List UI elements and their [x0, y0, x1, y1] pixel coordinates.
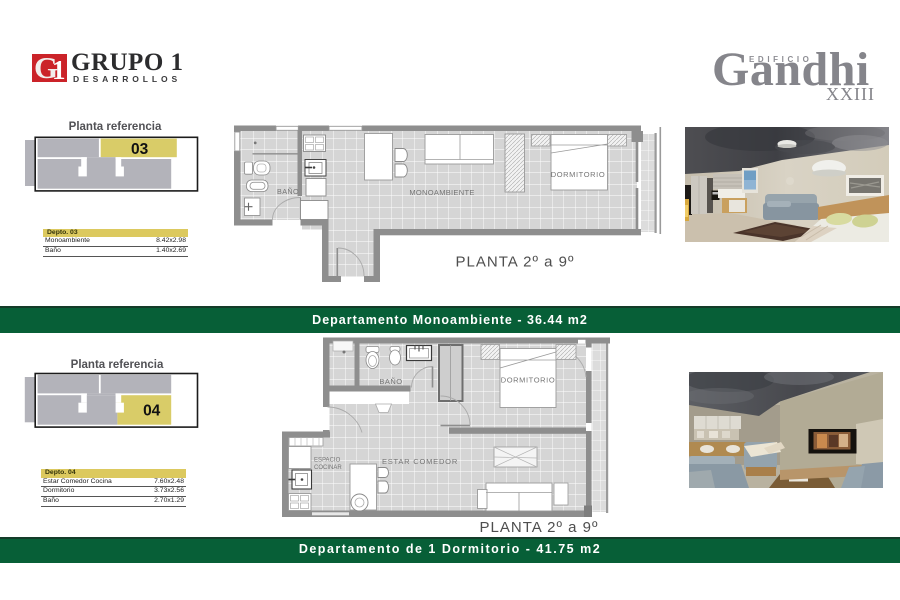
svg-text:BAÑO: BAÑO — [379, 377, 402, 386]
svg-text:ESPACIO: ESPACIO — [314, 458, 341, 464]
svg-text:PLANTA 2º a 9º: PLANTA 2º a 9º — [480, 519, 599, 536]
svg-text:ESTAR COMEDOR: ESTAR COMEDOR — [382, 457, 458, 466]
svg-text:DORMITORIO: DORMITORIO — [501, 376, 556, 385]
svg-text:COCINAR: COCINAR — [314, 465, 342, 471]
